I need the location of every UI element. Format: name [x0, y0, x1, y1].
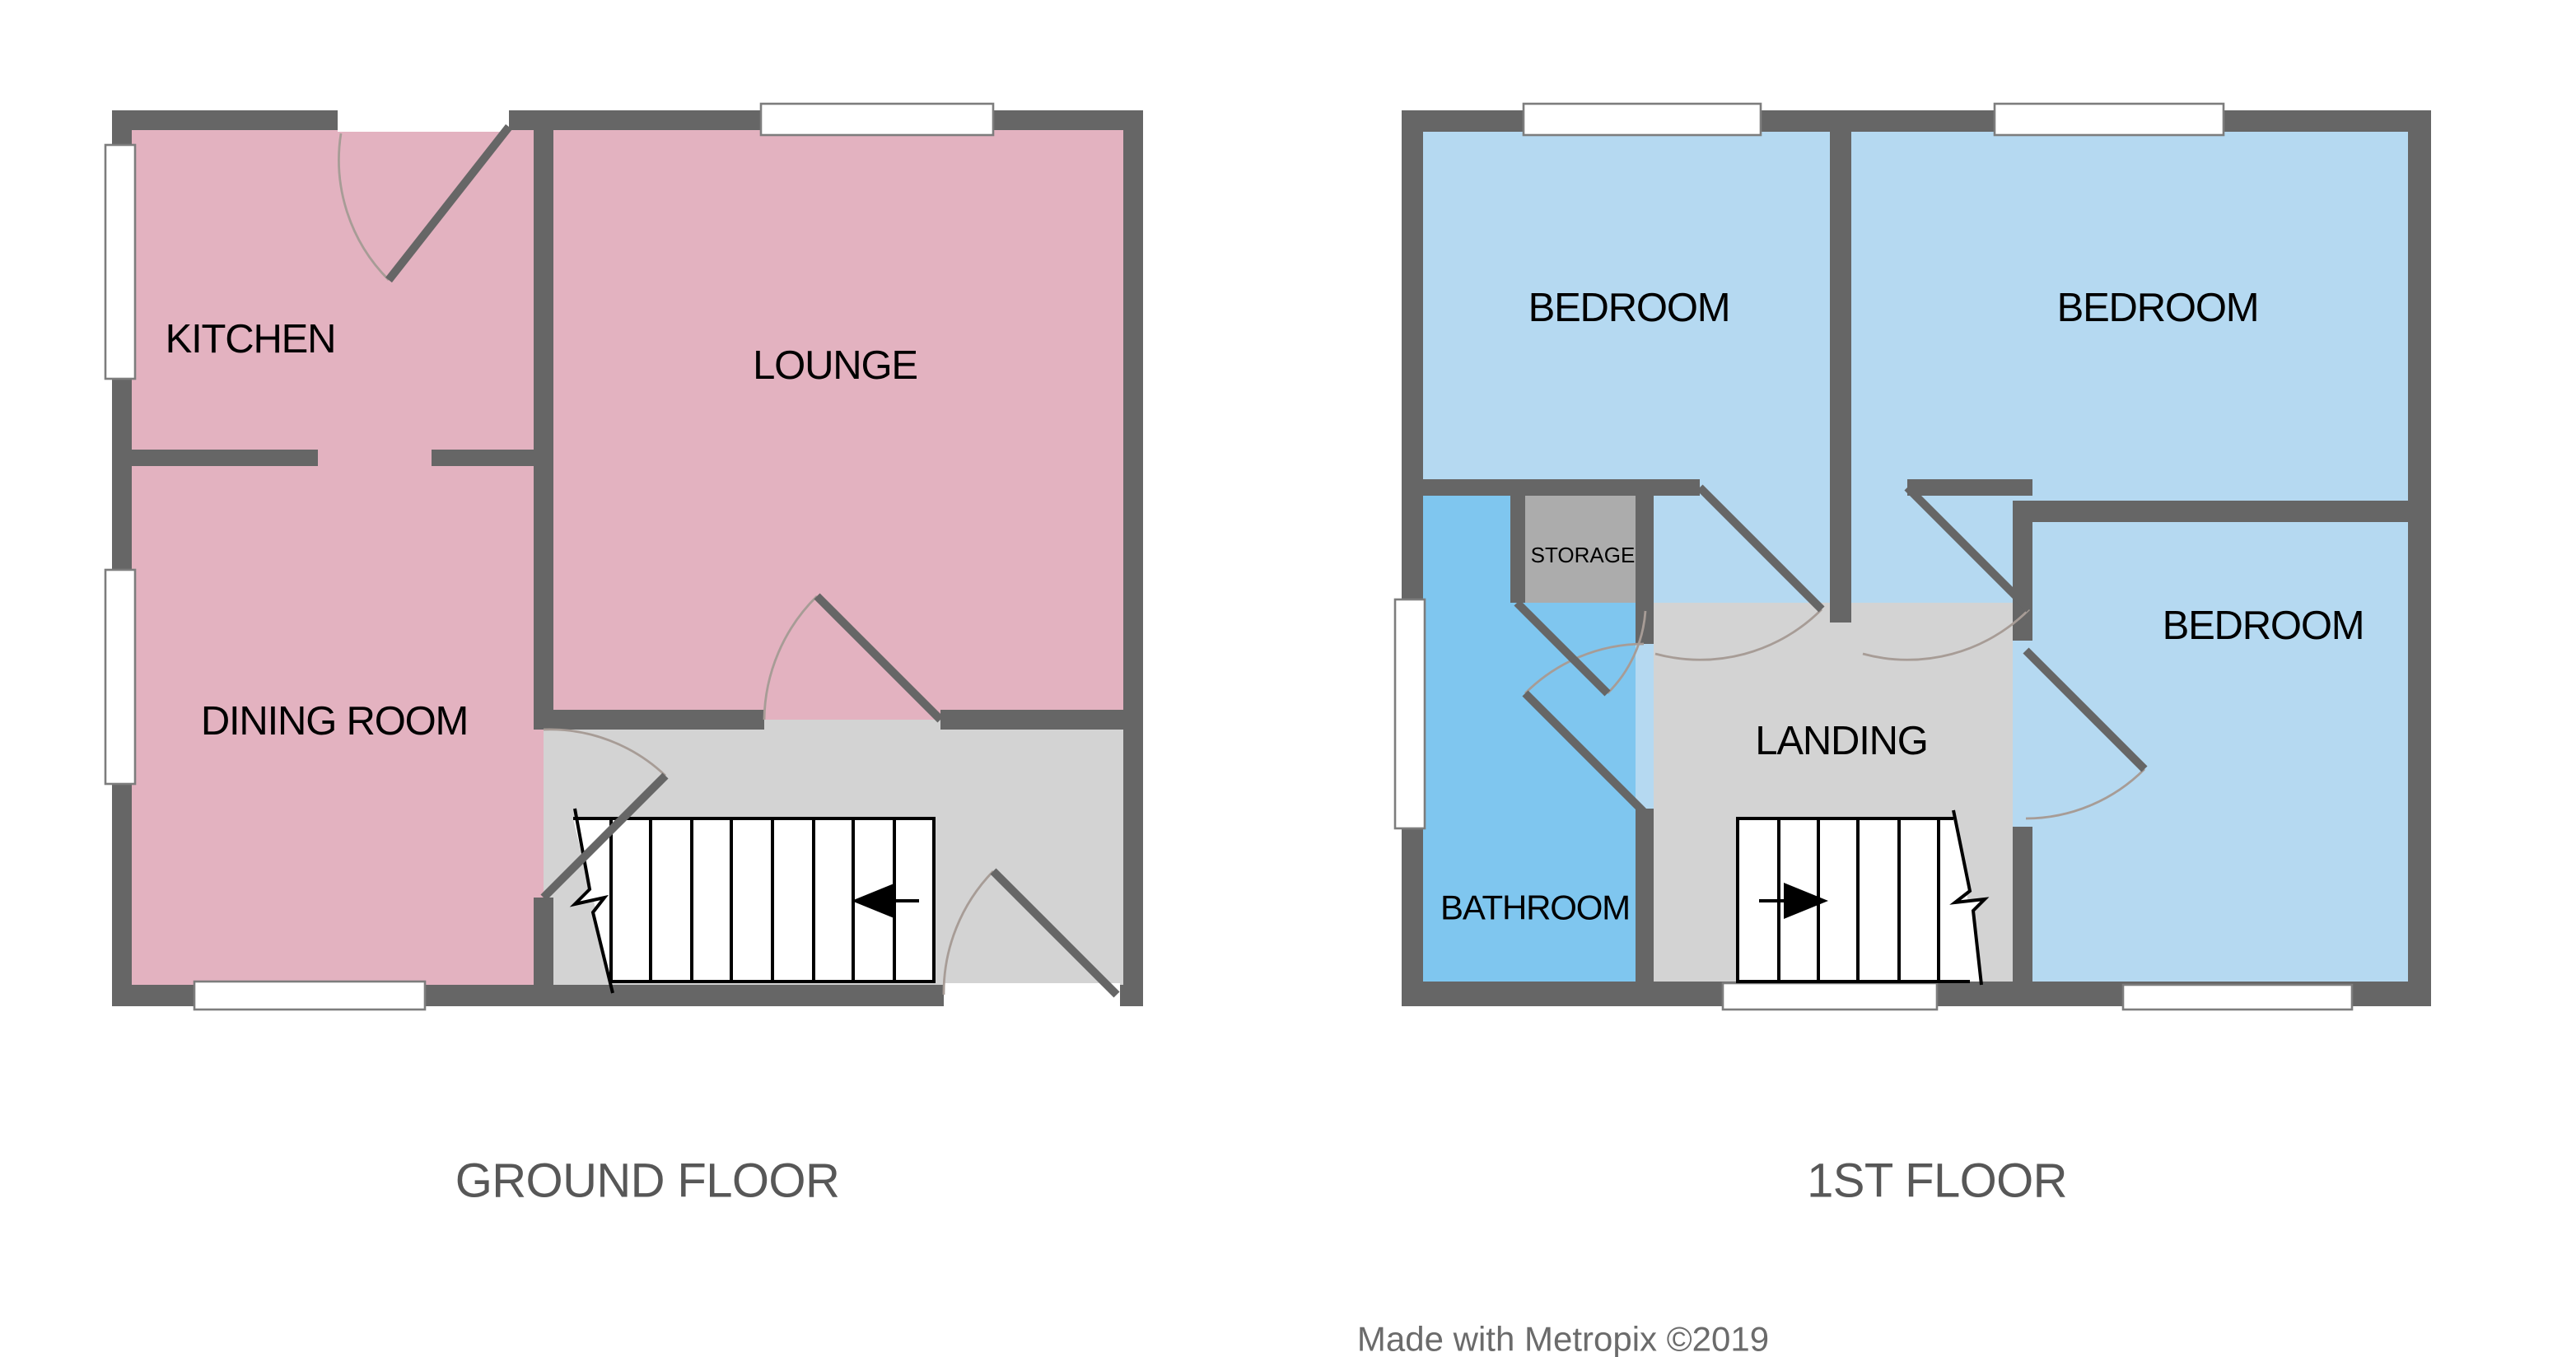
dining-window-bottom: [194, 982, 425, 1010]
wall-kitchen-dining-left: [132, 450, 318, 466]
dining-window-left: [105, 570, 135, 784]
bedroom3-label: BEDROOM: [2163, 604, 2364, 648]
ground-floor-plan: KITCHEN LOUNGE DINING ROOM GROUND FLOOR: [105, 104, 1143, 1208]
first-floor-plan: BEDROOM BEDROOM BEDROOM STORAGE LANDING …: [1395, 104, 2431, 1208]
kitchen-room: [132, 130, 544, 458]
first-floor-title: 1ST FLOOR: [1807, 1154, 2067, 1208]
wall-kitchen-dining-right: [432, 450, 553, 466]
stairwell-opening: [1723, 983, 1937, 1010]
wall-right: [1123, 110, 1143, 1006]
wall-bedroom2-bottom: [1907, 479, 2032, 496]
wall-bedroom-divider: [1830, 132, 1851, 623]
metropix-credit: Made with Metropix ©2019: [1357, 1320, 1769, 1357]
bedroom2-window: [1995, 104, 2224, 135]
lounge-label: LOUNGE: [753, 343, 917, 388]
lounge-room: [544, 130, 1123, 720]
wall-bedroom3-left-lower: [2013, 827, 2032, 982]
storage-label: STORAGE: [1531, 543, 1636, 567]
wall-left: [1402, 110, 1423, 1006]
front-door-opening: [944, 983, 1120, 1008]
wall-bedroom3-left-upper: [2013, 501, 2032, 641]
wall-right: [2408, 110, 2431, 1006]
landing-label: LANDING: [1755, 719, 1927, 763]
ground-floor-title: GROUND FLOOR: [455, 1154, 840, 1208]
kitchen-back-door-opening: [338, 109, 509, 132]
wall-storage-left: [1510, 496, 1525, 603]
floorplan-canvas: KITCHEN LOUNGE DINING ROOM GROUND FLOOR: [0, 0, 2576, 1357]
kitchen-window: [105, 145, 135, 379]
lounge-window: [761, 104, 993, 135]
wall-bedroom3-top: [2013, 501, 2408, 522]
bedroom2-label: BEDROOM: [2057, 286, 2259, 330]
first-floor-stairs: [1738, 810, 1985, 985]
dining-room-label: DINING ROOM: [201, 699, 468, 744]
wall-kitchen-lounge-divider: [534, 130, 553, 730]
bathroom-upper: [1423, 496, 1510, 603]
ground-floor-stairs: [573, 809, 934, 993]
bedroom1-window: [1524, 104, 1761, 135]
wall-lounge-hall-left: [534, 710, 764, 730]
kitchen-label: KITCHEN: [166, 317, 336, 361]
wall-lounge-hall-right: [940, 710, 1123, 730]
bathroom-label: BATHROOM: [1440, 888, 1630, 927]
bathroom-window: [1395, 599, 1425, 828]
wall-bathroom-landing-lower: [1636, 809, 1654, 982]
bedroom3-window: [2123, 985, 2352, 1010]
wall-dining-hall-lower: [534, 898, 553, 985]
wall-bedroom1-bottom: [1423, 479, 1700, 496]
bedroom1-label: BEDROOM: [1528, 286, 1730, 330]
